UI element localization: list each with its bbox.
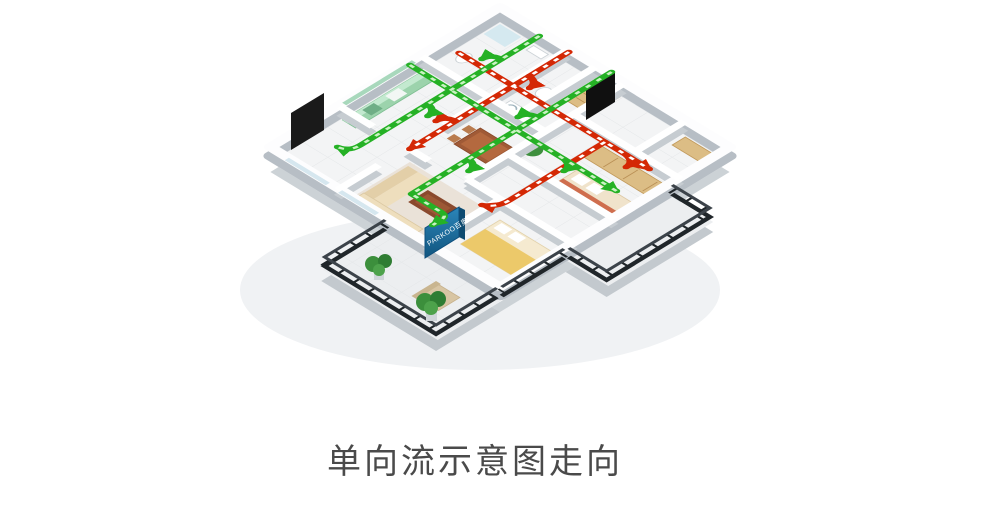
floorplan-svg: PARKOO百奥 [0,0,1000,430]
plant-foliage [373,264,385,276]
diagram-caption: 单向流示意图走向 [0,434,975,494]
airflow-diagram-page: { "caption": { "text": "单向流示意图走向" }, "de… [0,0,1000,510]
plant-foliage [424,301,438,315]
floorplan-illustration: PARKOO百奥 [0,0,1000,430]
